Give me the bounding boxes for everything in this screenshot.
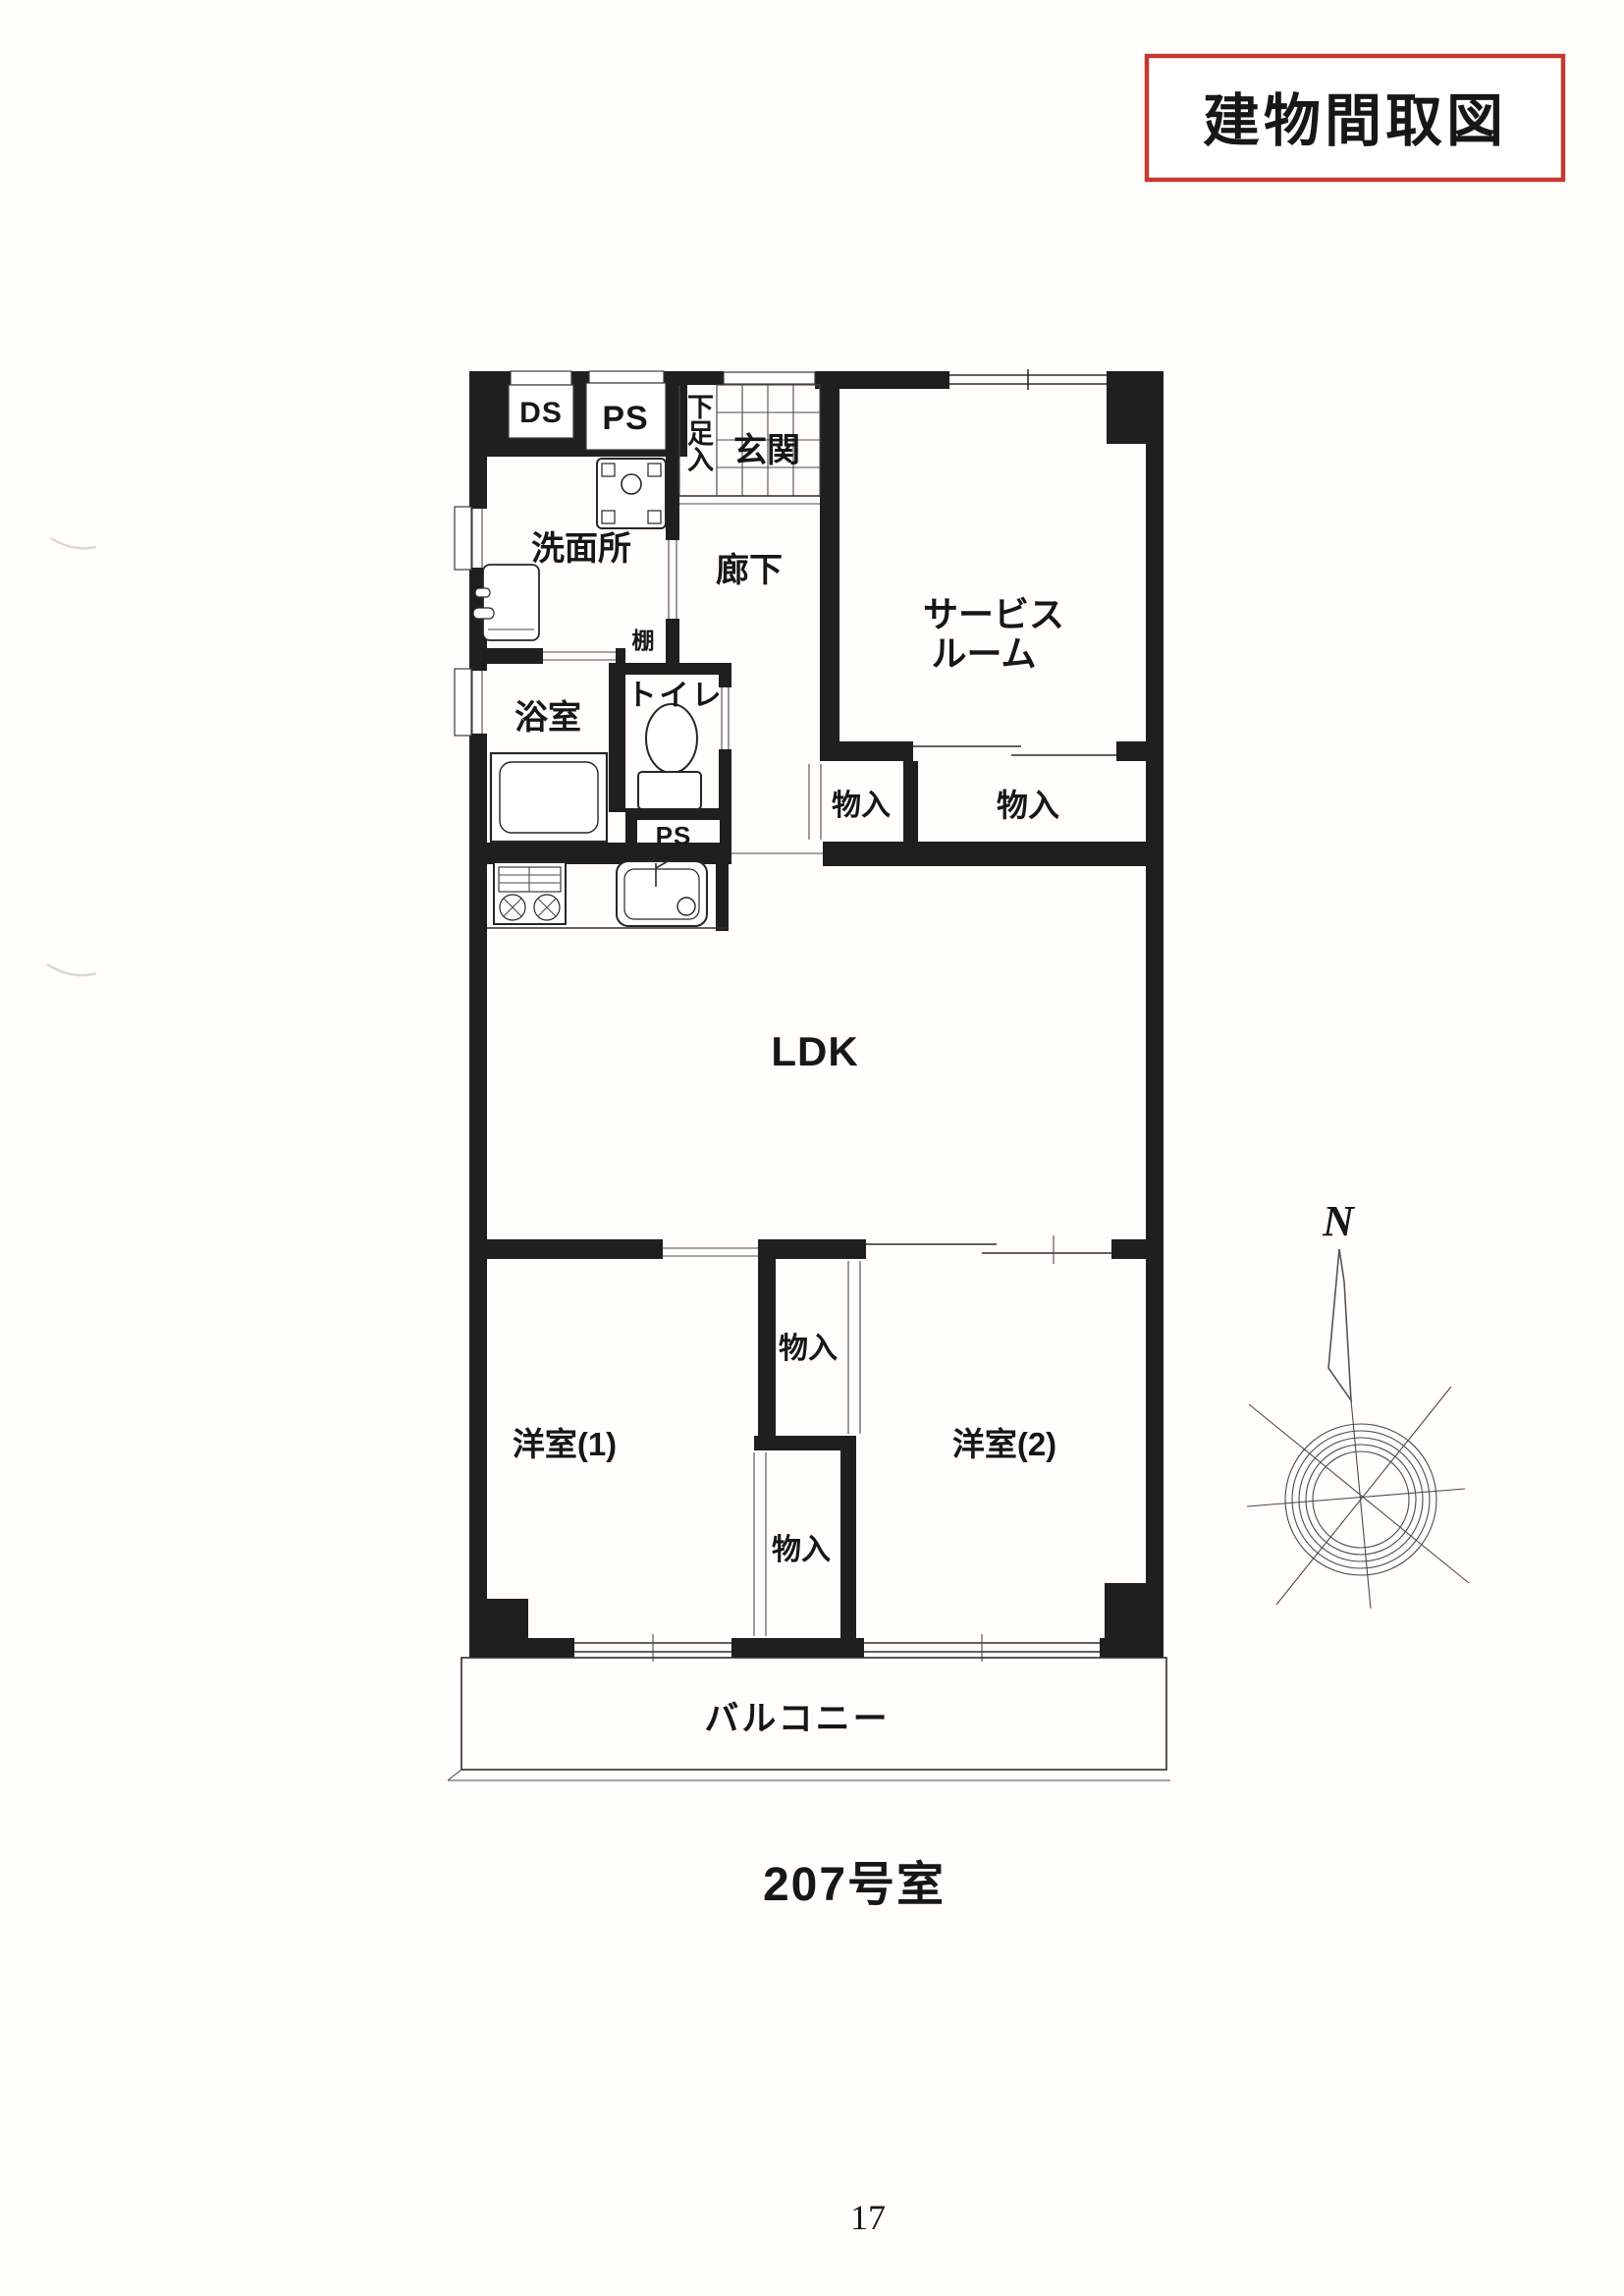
kitchen-sink-icon — [617, 861, 707, 926]
label-toilet: トイレ — [627, 680, 725, 712]
washing-machine-icon — [597, 459, 666, 528]
label-ds: DS — [519, 397, 563, 429]
vanity-sink-icon — [473, 565, 539, 640]
compass-north-label: N — [1322, 1197, 1356, 1245]
label-washroom: 洗面所 — [531, 530, 631, 568]
label-storage-upper: 物入 — [779, 1333, 838, 1365]
scan-artifacts — [47, 538, 96, 975]
scanned-floorplan-page: 建物間取図 — [0, 0, 1624, 2296]
label-bedroom2: 洋室(2) — [952, 1426, 1056, 1462]
label-bedroom1: 洋室(1) — [513, 1426, 617, 1462]
label-balcony: バルコニー — [704, 1700, 890, 1738]
label-shoe-cabinet: 下足入 — [683, 393, 714, 472]
label-bathroom: 浴室 — [514, 698, 581, 737]
compass-needle — [1328, 1249, 1351, 1400]
entrance-door — [724, 372, 815, 384]
title-badge: 建物間取図 — [1147, 56, 1563, 180]
label-storage-left: 物入 — [832, 790, 891, 822]
compass: N — [1247, 1197, 1469, 1609]
title-badge-text: 建物間取図 — [1203, 89, 1507, 153]
unit-label: 207号室 — [763, 1859, 946, 1911]
bathtub-icon — [491, 753, 607, 842]
label-service-room-line2: ルーム — [932, 633, 1037, 674]
toilet-icon — [638, 704, 701, 809]
page-number: 17 — [850, 2198, 886, 2237]
label-ps-mid: PS — [656, 821, 692, 850]
kitchen-stove-icon — [494, 862, 566, 924]
label-service-room-line1: サービス — [923, 594, 1064, 634]
label-shelf: 棚 — [632, 628, 655, 653]
label-entrance: 玄関 — [733, 432, 800, 469]
label-ldk: LDK — [771, 1028, 858, 1074]
label-hallway: 廊下 — [716, 552, 783, 589]
label-ps-top: PS — [602, 400, 648, 437]
label-storage-lower: 物入 — [772, 1534, 831, 1566]
label-storage-right: 物入 — [997, 788, 1059, 823]
